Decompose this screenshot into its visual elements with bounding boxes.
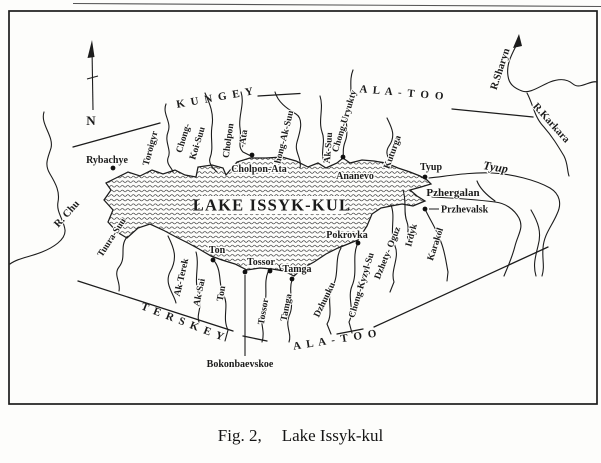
scan-artifact-line: [73, 4, 601, 7]
town-dot-ton: [211, 258, 216, 263]
town-dot-tamga: [290, 277, 295, 282]
town-dot-rybachye: [111, 166, 116, 171]
town-label-pokrovka: Pokrovka: [326, 230, 368, 241]
town-label-bokonbaevskoe: Bokonbaevskoe: [207, 359, 274, 370]
town-dot-cholpon-ata: [250, 153, 255, 158]
lake-label: LAKE ISSYK-KUL: [193, 196, 351, 215]
town-label-tossor: Tossor: [247, 257, 276, 268]
town-dot-pokrovka: [356, 241, 361, 246]
figure-caption-title: Lake Issyk-kul: [282, 426, 384, 445]
town-label-ananevo: Ananevo: [336, 171, 374, 182]
figure-caption-number: Fig. 2,: [218, 426, 262, 445]
town-label-tamga: Tamga: [282, 264, 311, 275]
figure-caption: Fig. 2,Lake Issyk-kul: [0, 426, 601, 446]
town-dot-tyup: [423, 175, 428, 180]
river-label-pzhergalan: Pzhergalan: [426, 187, 479, 199]
town-dot-przhevalsk: [423, 207, 428, 212]
lake-issyk-kul-map: N K U N G E Y A L A - T O O T E R S K E …: [0, 0, 601, 463]
compass-n-label: N: [86, 113, 96, 128]
town-label-cholpon-ata: Cholpon-Ata: [231, 164, 287, 175]
town-label-ton: Ton: [209, 245, 226, 256]
town-label-przhevalsk: Przhevalsk: [441, 205, 489, 216]
scanned-figure-page: N K U N G E Y A L A - T O O T E R S K E …: [0, 0, 601, 463]
town-dot-tossor: [268, 269, 273, 274]
town-label-rybachye: Rybachye: [86, 155, 128, 166]
town-dot-bokonbaevskoe: [243, 270, 248, 275]
town-label-tyup: Tyup: [420, 162, 442, 173]
town-dot-ananevo: [341, 155, 346, 160]
